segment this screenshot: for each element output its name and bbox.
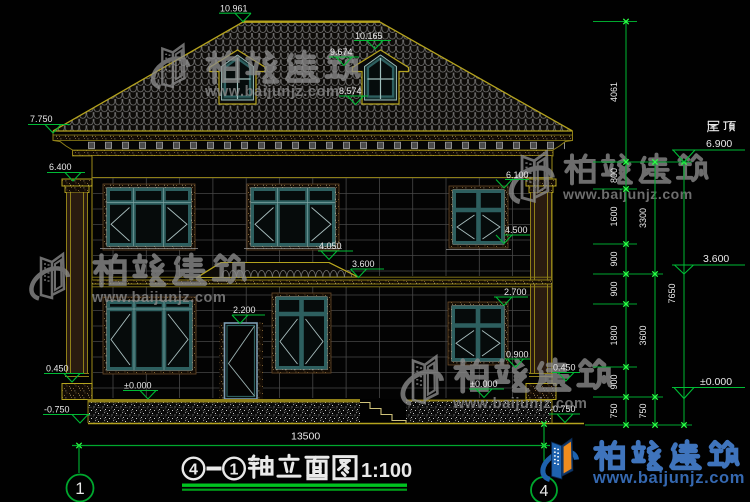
svg-text:www.baijunjz.com: www.baijunjz.com bbox=[592, 469, 745, 487]
svg-text:0.450: 0.450 bbox=[46, 364, 69, 374]
svg-text:3600: 3600 bbox=[638, 325, 648, 345]
svg-text:7650: 7650 bbox=[667, 283, 677, 303]
svg-text:0.900: 0.900 bbox=[506, 350, 529, 360]
svg-text:3.600: 3.600 bbox=[703, 253, 729, 265]
svg-text:-0.750: -0.750 bbox=[550, 404, 576, 414]
svg-text:4.500: 4.500 bbox=[505, 225, 528, 235]
svg-text:0.450: 0.450 bbox=[553, 363, 576, 373]
svg-text:10.165: 10.165 bbox=[355, 31, 383, 41]
svg-text:4: 4 bbox=[189, 462, 198, 479]
svg-text:±0.000: ±0.000 bbox=[124, 381, 151, 391]
svg-text:7.750: 7.750 bbox=[30, 114, 53, 124]
svg-text:10.961: 10.961 bbox=[220, 4, 248, 14]
svg-text:6.900: 6.900 bbox=[706, 138, 732, 150]
svg-text:3300: 3300 bbox=[638, 208, 648, 228]
svg-text:1800: 1800 bbox=[609, 325, 619, 345]
svg-text:4: 4 bbox=[540, 483, 549, 500]
svg-text:1: 1 bbox=[230, 462, 239, 479]
svg-text:4.050: 4.050 bbox=[319, 241, 342, 251]
svg-text:900: 900 bbox=[609, 281, 619, 296]
svg-text:6.100: 6.100 bbox=[506, 170, 529, 180]
svg-text:www.baijunjz.com: www.baijunjz.com bbox=[91, 290, 226, 306]
svg-text:900: 900 bbox=[609, 374, 619, 389]
svg-text:6.400: 6.400 bbox=[49, 162, 72, 172]
svg-text:750: 750 bbox=[638, 403, 648, 418]
svg-text:3.600: 3.600 bbox=[352, 259, 375, 269]
svg-text:2.700: 2.700 bbox=[504, 287, 527, 297]
svg-text:750: 750 bbox=[609, 403, 619, 418]
svg-text:1: 1 bbox=[75, 479, 84, 498]
svg-text:2.200: 2.200 bbox=[233, 305, 256, 315]
svg-text:±0.000: ±0.000 bbox=[700, 376, 732, 388]
svg-text:1600: 1600 bbox=[609, 206, 619, 226]
svg-text:-0.750: -0.750 bbox=[44, 405, 70, 415]
svg-text:±0.000: ±0.000 bbox=[470, 379, 497, 389]
svg-text:900: 900 bbox=[609, 251, 619, 266]
svg-text:4061: 4061 bbox=[609, 82, 619, 102]
svg-text:9.674: 9.674 bbox=[330, 47, 353, 57]
svg-text:1:100: 1:100 bbox=[361, 460, 412, 482]
svg-text:800: 800 bbox=[609, 168, 619, 183]
svg-text:8.574: 8.574 bbox=[339, 86, 362, 96]
svg-text:13500: 13500 bbox=[291, 431, 320, 443]
svg-text:www.baijunjz.com: www.baijunjz.com bbox=[204, 84, 339, 100]
